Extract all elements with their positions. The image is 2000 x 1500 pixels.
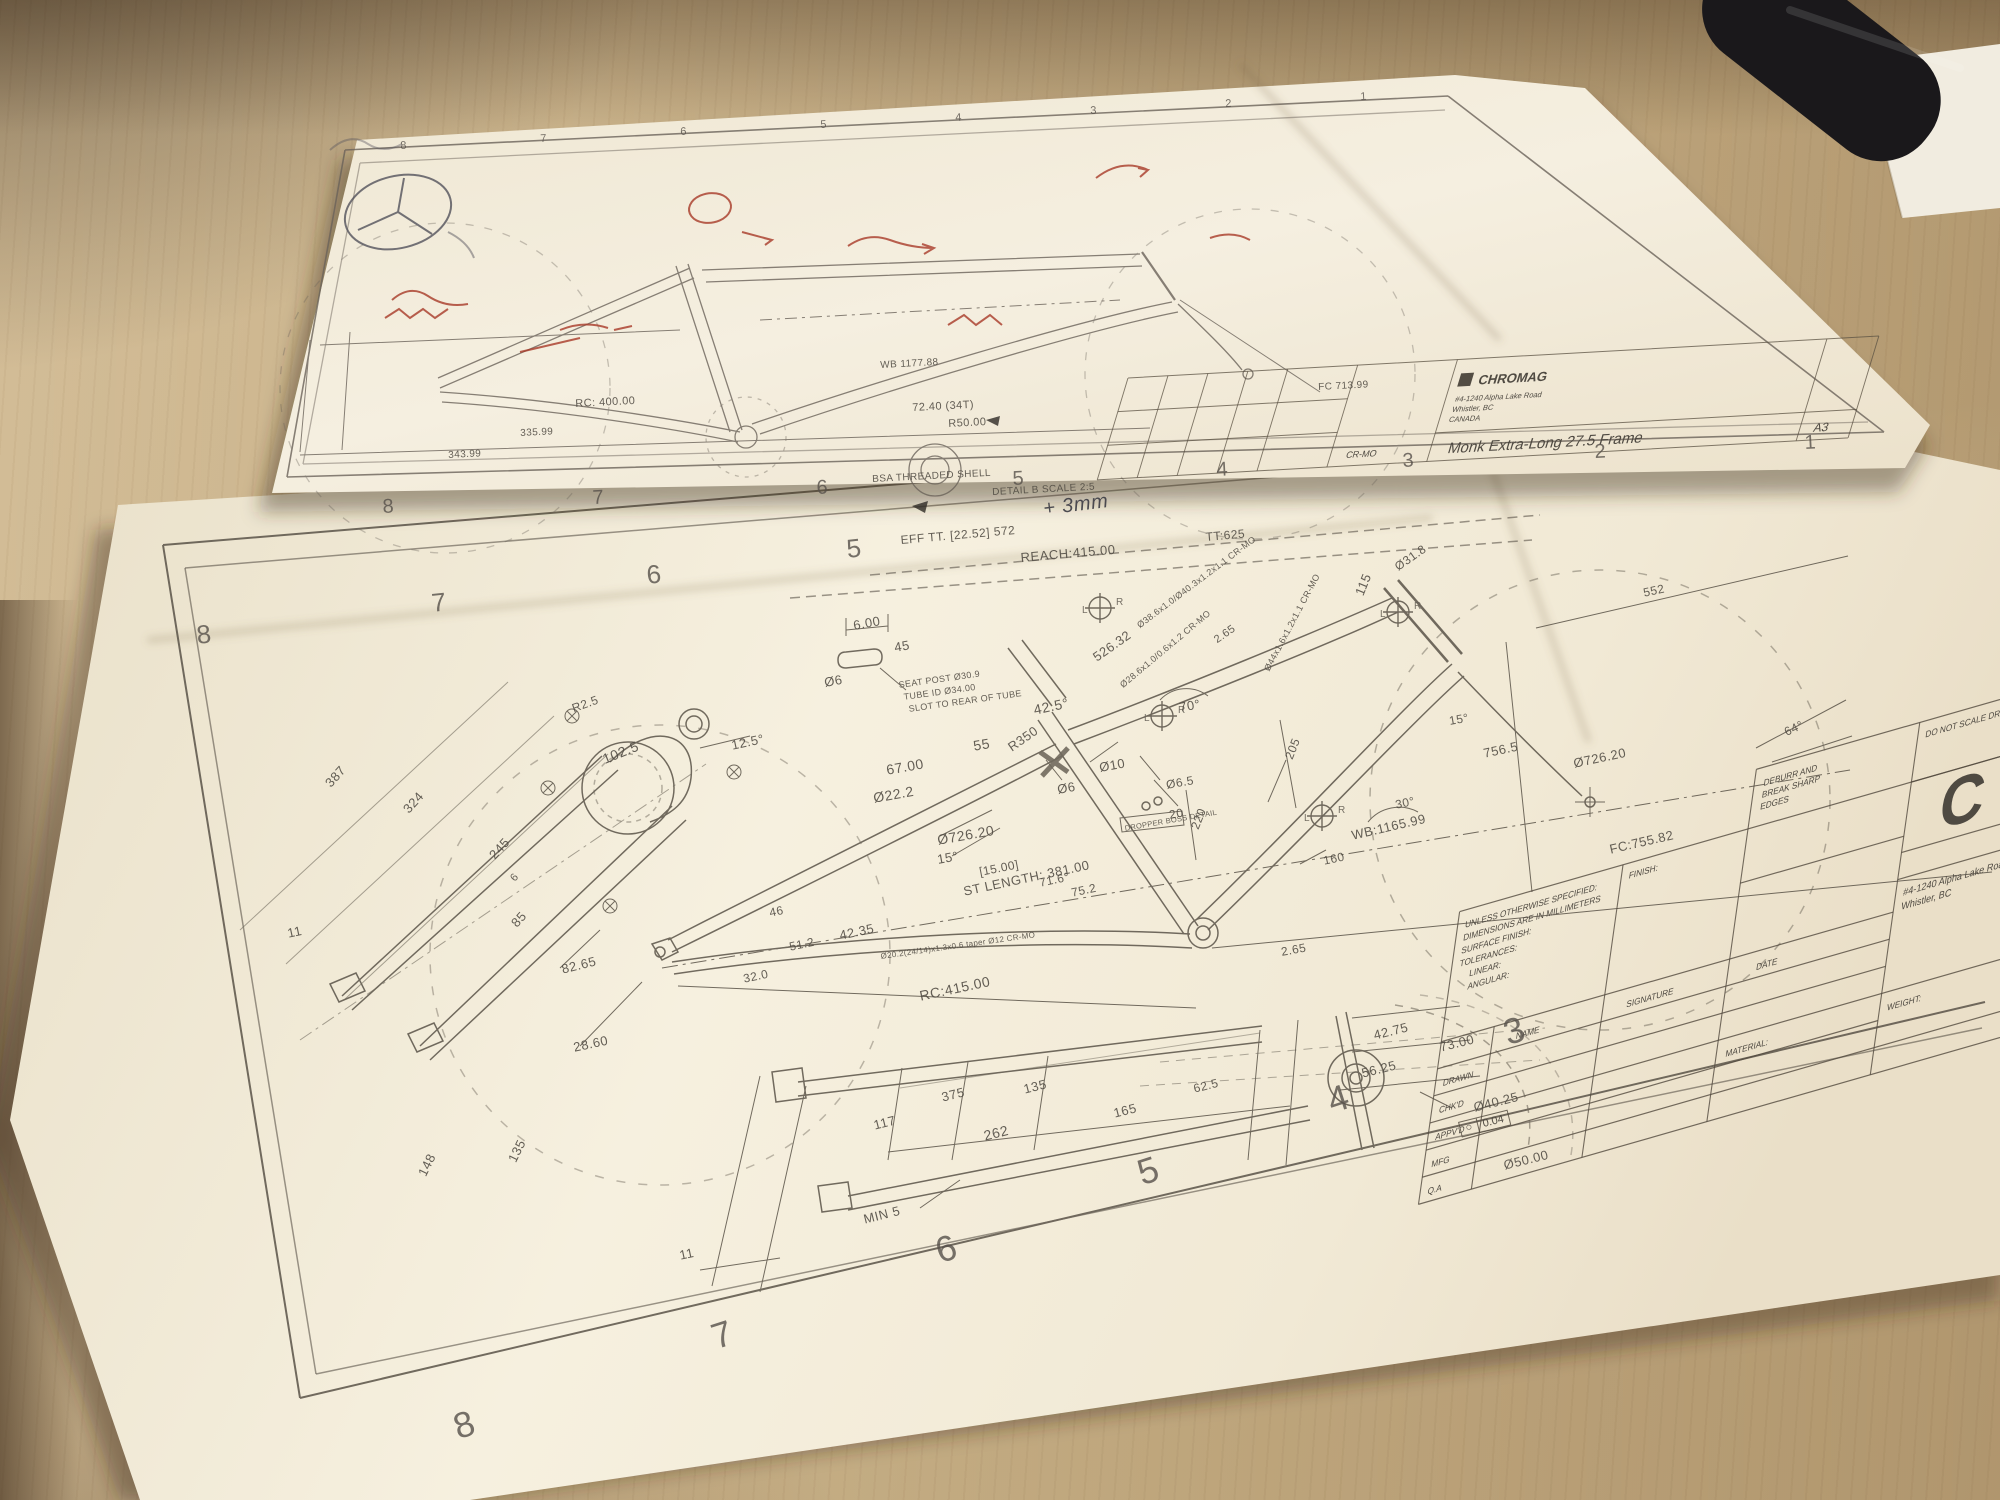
zone-number: 4 xyxy=(955,112,962,124)
zone-number: 8 xyxy=(400,140,407,152)
zone-number: 7 xyxy=(592,486,605,510)
svg-text:R: R xyxy=(1414,601,1421,612)
svg-text:L: L xyxy=(1144,713,1150,724)
zone-number: 2 xyxy=(1225,98,1232,110)
svg-text:L: L xyxy=(1380,609,1386,620)
zone-number: 5 xyxy=(845,532,864,564)
zone-number: 8 xyxy=(382,495,395,519)
zone-number: 7 xyxy=(430,586,449,618)
dimension-label: 46 xyxy=(768,903,785,920)
zone-number: 7 xyxy=(540,133,547,145)
dimension-label: 11 xyxy=(286,923,303,941)
svg-text:L: L xyxy=(1082,605,1088,616)
svg-text:L: L xyxy=(1304,813,1310,824)
dimension-label: 335.99 xyxy=(520,426,554,439)
zone-number: 6 xyxy=(680,126,687,138)
zone-number: 4 xyxy=(1216,458,1229,482)
svg-text:R: R xyxy=(1116,597,1123,608)
dimension-label: 45 xyxy=(893,637,911,654)
zone-number: 8 xyxy=(195,618,214,650)
scene: LR LR LR LR UNLESS OTHERWISE SPECIFIED: … xyxy=(0,0,2000,1500)
zone-number: 5 xyxy=(820,119,827,131)
zone-number: 6 xyxy=(645,558,664,590)
zone-number: 6 xyxy=(816,476,829,500)
zone-number: 1 xyxy=(1360,91,1367,103)
dimension-label: Ø6 xyxy=(823,672,844,690)
dimension-label: 55 xyxy=(972,735,991,754)
zone-number: 2 xyxy=(1594,440,1607,464)
svg-text:R: R xyxy=(1338,805,1345,816)
svg-text:CR-MO: CR-MO xyxy=(1345,448,1378,460)
zone-number: 3 xyxy=(1402,449,1415,473)
dimension-label: 11 xyxy=(678,1245,695,1263)
dimension-label: R50.00 xyxy=(948,416,987,430)
photo-of-blueprints: LR LR LR LR UNLESS OTHERWISE SPECIFIED: … xyxy=(0,0,2000,1500)
zone-number: 3 xyxy=(1090,105,1097,117)
dimension-label: 343.99 xyxy=(448,448,482,461)
zone-number: 1 xyxy=(1804,431,1817,455)
dimension-label: Ø6 xyxy=(1056,779,1077,797)
